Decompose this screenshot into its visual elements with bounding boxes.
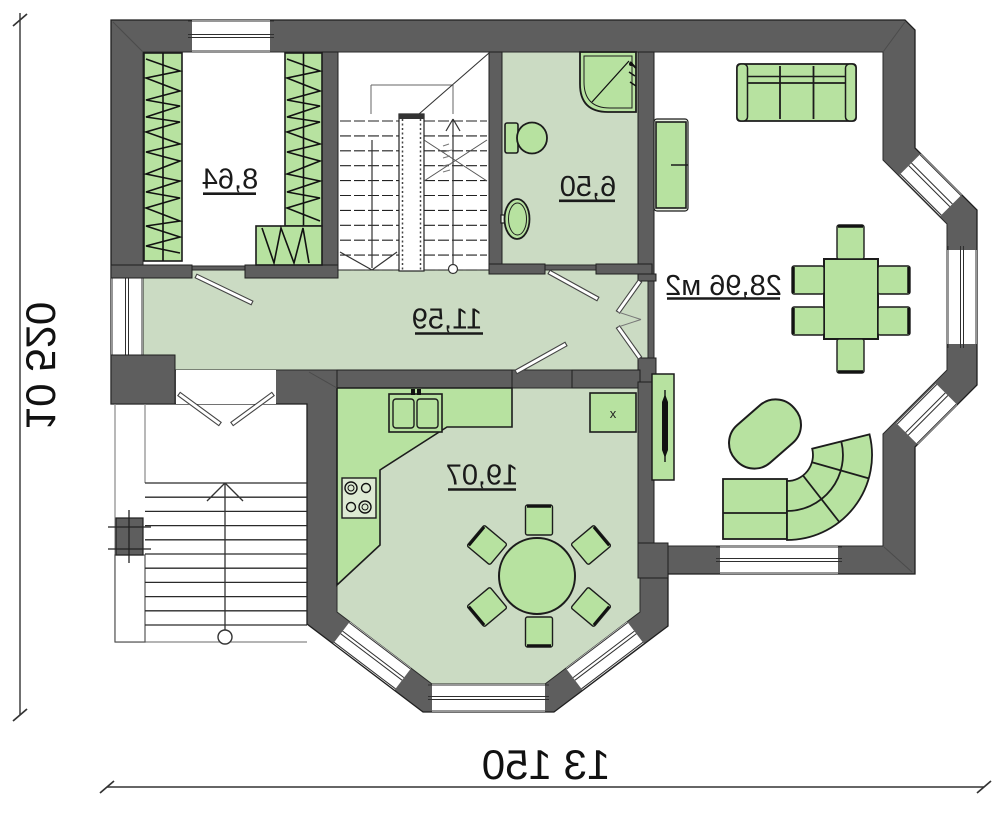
svg-text:10 520: 10 520	[18, 302, 65, 430]
svg-text:6,50: 6,50	[560, 171, 616, 203]
svg-text:19,07: 19,07	[446, 460, 519, 492]
svg-text:x: x	[610, 406, 617, 421]
svg-text:11,59: 11,59	[412, 304, 482, 336]
svg-text:8,64: 8,64	[202, 164, 258, 196]
svg-text:13 150: 13 150	[482, 741, 610, 788]
